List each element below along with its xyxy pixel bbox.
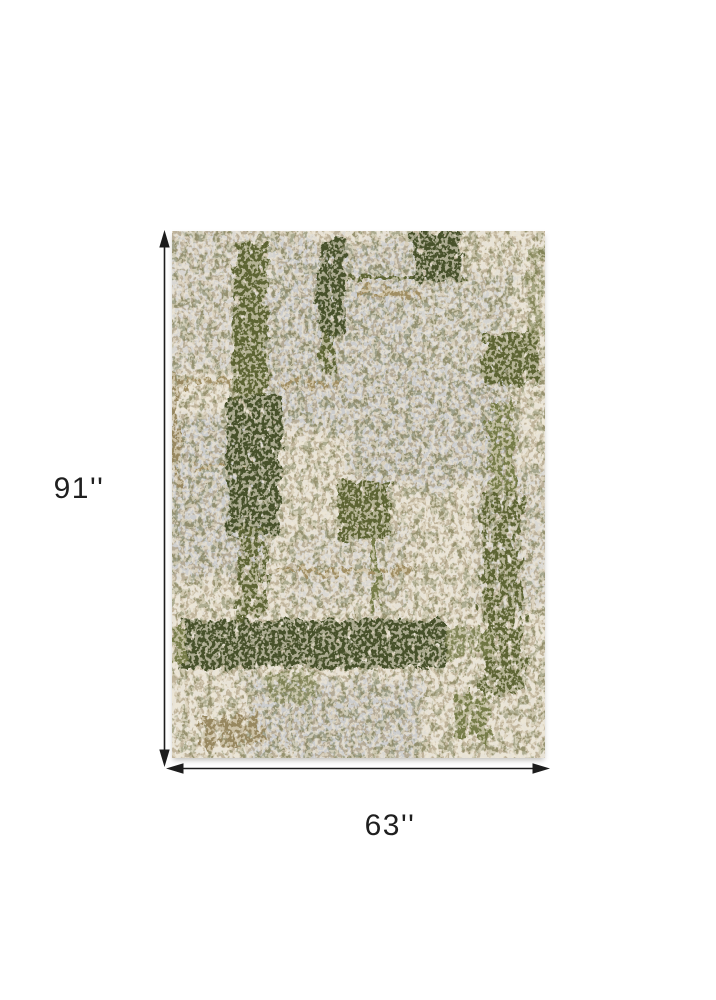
rug-speckle-light-layer	[172, 231, 545, 758]
arrowhead-up-icon	[159, 230, 169, 248]
product-dimension-image: 91'' 63''	[0, 0, 716, 1000]
arrowhead-left-icon	[166, 763, 184, 773]
rug-art	[172, 231, 545, 758]
rug-image	[172, 231, 545, 758]
height-label: 91''	[29, 474, 129, 504]
arrowhead-right-icon	[533, 763, 551, 773]
width-label: 63''	[330, 811, 450, 841]
arrowhead-down-icon	[159, 750, 169, 768]
